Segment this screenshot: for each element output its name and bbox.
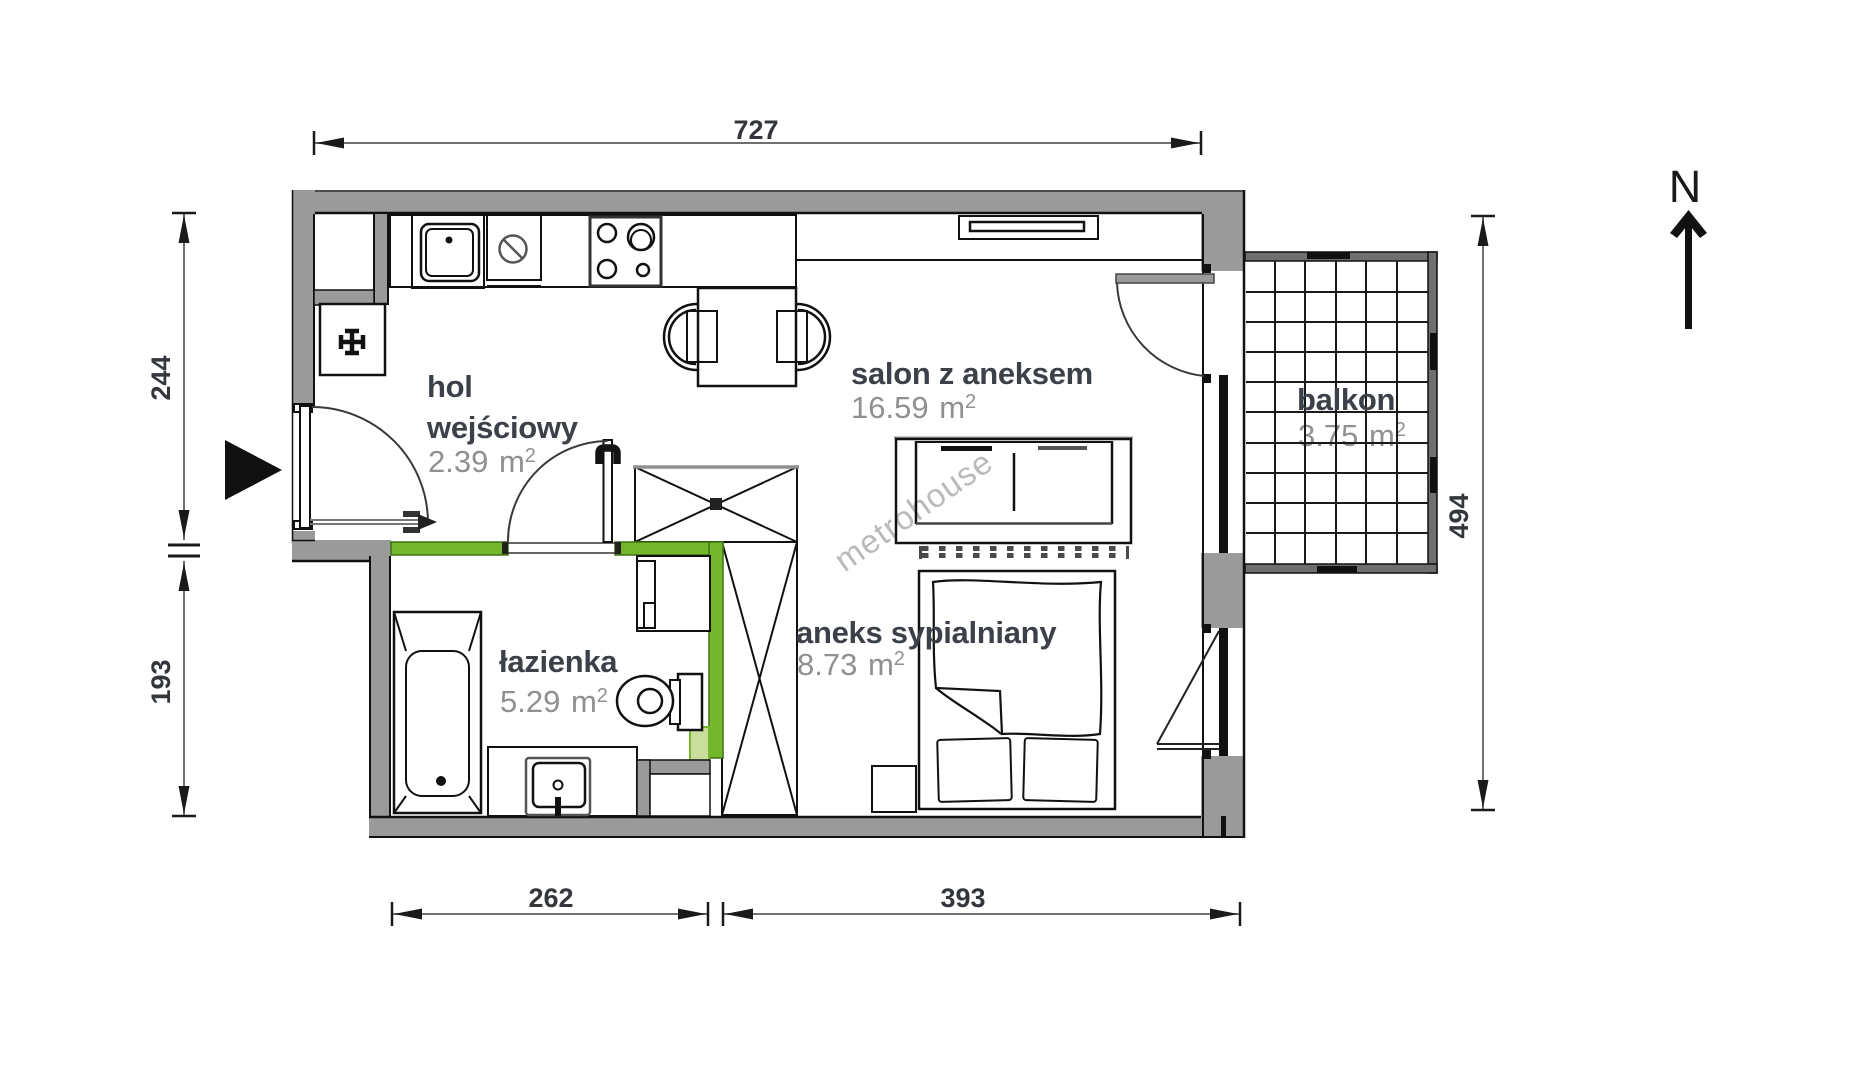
svg-text:5.29 m2: 5.29 m2 xyxy=(500,684,608,719)
svg-text:16.59 m2: 16.59 m2 xyxy=(851,390,976,425)
svg-text:494: 494 xyxy=(1444,493,1474,538)
svg-text:hol: hol xyxy=(427,369,473,404)
svg-text:193: 193 xyxy=(146,659,176,704)
svg-text:aneks sypialniany: aneks sypialniany xyxy=(796,615,1057,650)
svg-text:salon z aneksem: salon z aneksem xyxy=(851,356,1093,391)
svg-text:2.39 m2: 2.39 m2 xyxy=(428,444,536,479)
svg-text:balkon: balkon xyxy=(1297,382,1395,417)
svg-text:727: 727 xyxy=(733,115,778,145)
svg-text:N: N xyxy=(1669,161,1702,212)
svg-text:8.73 m2: 8.73 m2 xyxy=(797,647,905,682)
svg-text:262: 262 xyxy=(528,883,573,913)
svg-text:łazienka: łazienka xyxy=(499,644,618,679)
svg-text:393: 393 xyxy=(940,883,985,913)
svg-text:3.75 m2: 3.75 m2 xyxy=(1298,418,1406,453)
svg-text:244: 244 xyxy=(146,355,176,400)
svg-text:wejściowy: wejściowy xyxy=(426,410,579,445)
